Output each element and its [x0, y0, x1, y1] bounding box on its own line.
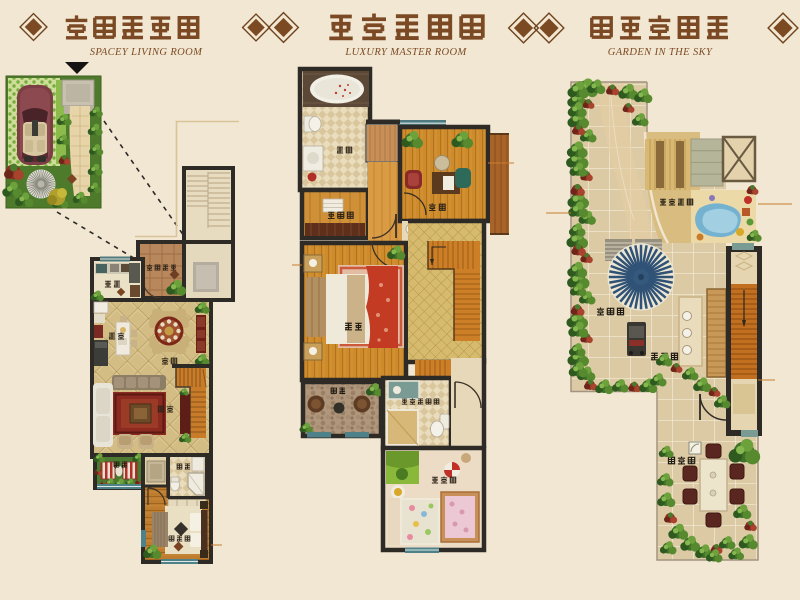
svg-text:LUXURY MASTER ROOM: LUXURY MASTER ROOM — [344, 47, 467, 58]
svg-text:GARDEN IN THE SKY: GARDEN IN THE SKY — [608, 47, 713, 58]
svg-text:SPACEY LIVING ROOM: SPACEY LIVING ROOM — [90, 47, 203, 58]
